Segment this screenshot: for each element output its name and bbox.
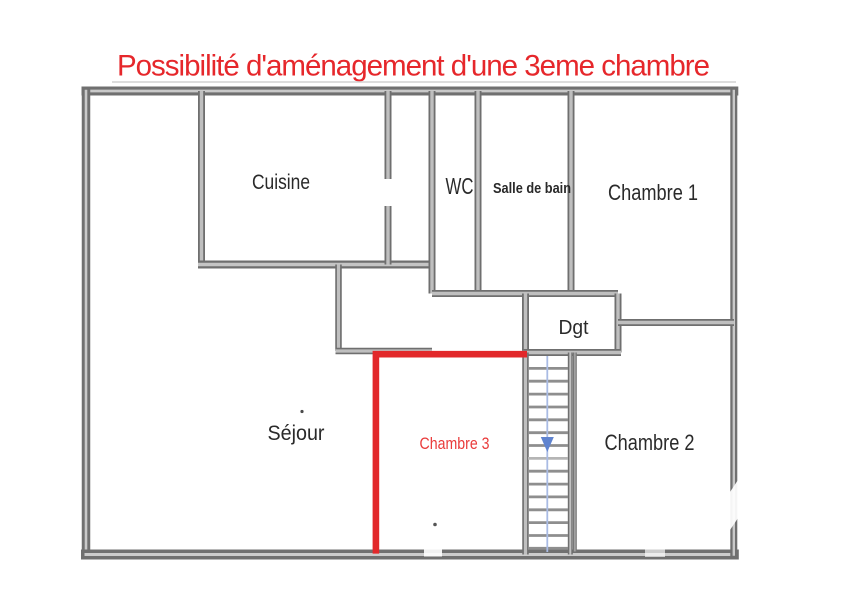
svg-text:Chambre 2: Chambre 2 [605,430,695,455]
svg-text:Chambre 3: Chambre 3 [420,434,490,453]
svg-text:Cuisine: Cuisine [252,171,310,194]
svg-text:Séjour: Séjour [268,421,325,445]
svg-text:Salle de bain: Salle de bain [493,180,571,197]
svg-text:Possibilité d'aménagement d'un: Possibilité d'aménagement d'une 3eme cha… [117,50,710,83]
svg-text:Dgt: Dgt [559,317,589,339]
svg-text:Chambre 1: Chambre 1 [608,180,698,205]
svg-text:WC: WC [446,173,474,199]
